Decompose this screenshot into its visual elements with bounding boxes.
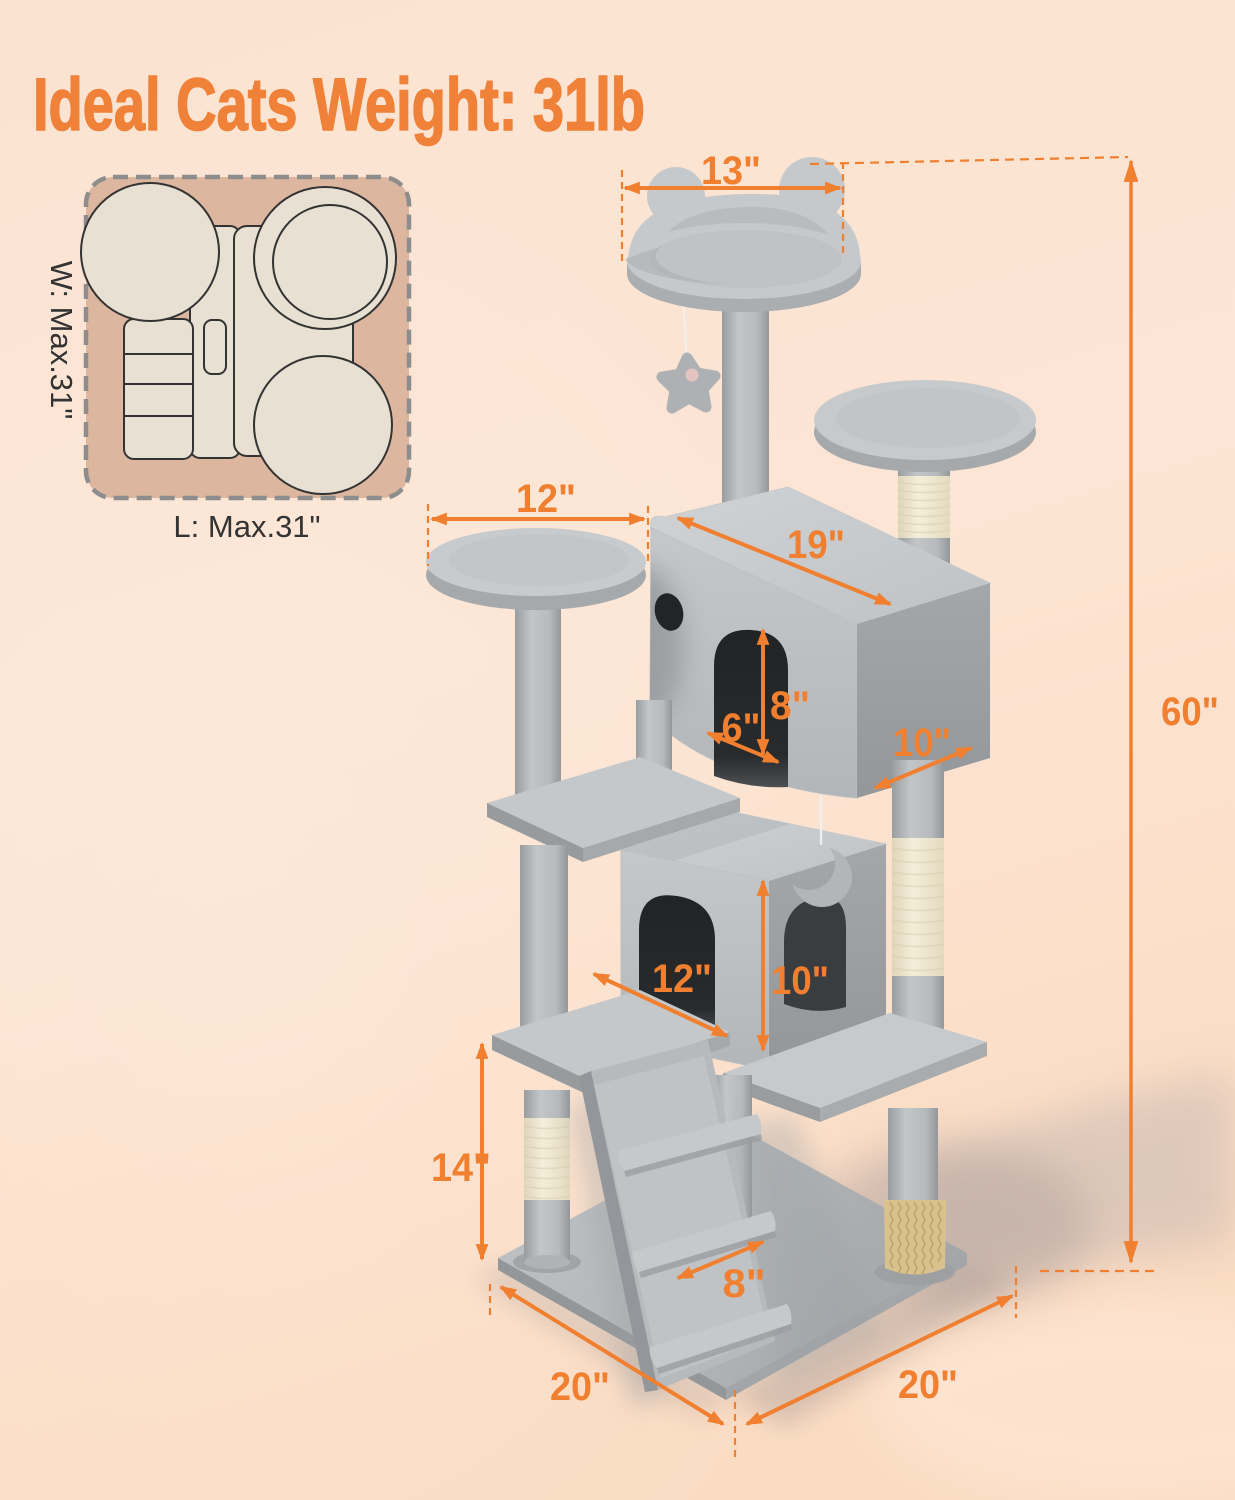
svg-text:Ideal Cats Weight: 31lb: Ideal Cats Weight: 31lb <box>33 63 645 146</box>
svg-text:60": 60" <box>1161 690 1219 734</box>
svg-text:W: Max.31": W: Max.31" <box>44 261 79 420</box>
svg-text:L: Max.31": L: Max.31" <box>173 509 320 544</box>
svg-text:20": 20" <box>898 1363 958 1407</box>
svg-text:8": 8" <box>723 1262 766 1306</box>
svg-text:10": 10" <box>771 959 829 1003</box>
svg-text:12": 12" <box>652 957 712 1001</box>
svg-text:12": 12" <box>516 477 576 521</box>
svg-text:20": 20" <box>550 1365 610 1409</box>
svg-text:6": 6" <box>722 706 761 750</box>
svg-text:8": 8" <box>770 684 810 728</box>
svg-text:19": 19" <box>787 523 845 567</box>
